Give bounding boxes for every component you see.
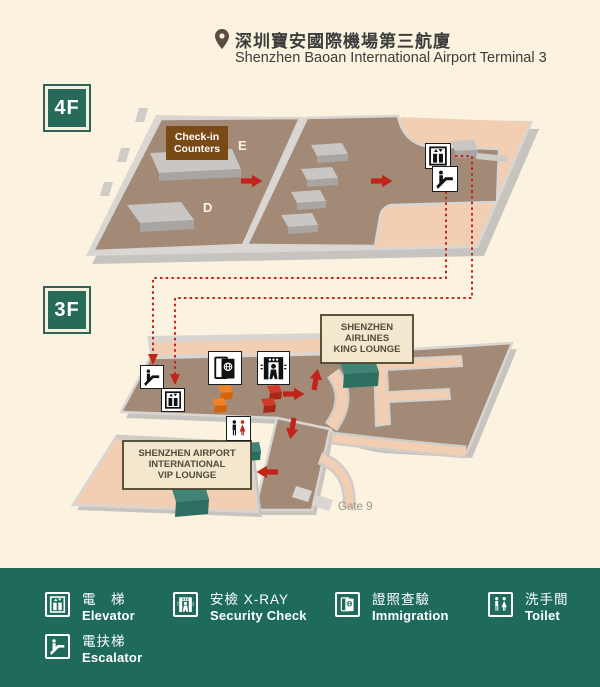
legend-item-elevator: 電 梯 Elevator <box>45 592 135 624</box>
escalator-icon <box>432 166 458 192</box>
toilet-icon <box>226 416 251 441</box>
elevator-icon <box>161 388 185 412</box>
legend-item-toilet: 洗手間 Toilet <box>488 592 569 624</box>
vip-lounge-label: SHENZHEN AIRPORT INTERNATIONAL VIP LOUNG… <box>123 441 251 489</box>
toilet-icon <box>488 592 513 617</box>
security-check-icon <box>173 592 198 617</box>
vip-lounge-line3: VIP LOUNGE <box>158 470 216 481</box>
legend-bar: 電 梯 Elevator 電扶梯 Escalator 安檢 X-RAY Secu… <box>0 568 600 687</box>
king-lounge-label: SHENZHEN AIRLINES KING LOUNGE <box>321 315 413 363</box>
elevator-icon <box>45 592 70 617</box>
legend-security-en: Security Check <box>210 608 307 624</box>
king-lounge-line2: AIRLINES <box>345 333 389 344</box>
legend-item-escalator: 電扶梯 Escalator <box>45 634 142 666</box>
checkin-counters-label: Check-in Counters <box>166 126 228 160</box>
legend-item-immigration: 證照查驗 Immigration <box>335 592 449 624</box>
checkin-line1: Check-in <box>175 131 219 143</box>
legend-item-security: 安檢 X-RAY Security Check <box>173 592 307 624</box>
legend-elevator-en: Elevator <box>82 608 135 624</box>
legend-toilet-zh: 洗手間 <box>525 592 569 608</box>
immigration-icon <box>208 351 242 385</box>
gate-9-label: Gate 9 <box>338 501 373 513</box>
escalator-icon <box>140 365 164 389</box>
immigration-icon <box>335 592 360 617</box>
legend-security-zh: 安檢 X-RAY <box>210 592 307 608</box>
king-lounge-line1: SHENZHEN <box>341 322 393 333</box>
terminal-map: E D Check-in Counters <box>0 0 600 568</box>
escalator-icon <box>45 634 70 659</box>
zone-e-label: E <box>238 138 247 153</box>
legend-immigration-zh: 證照查驗 <box>372 592 449 608</box>
vip-lounge-line2: INTERNATIONAL <box>149 459 226 470</box>
legend-toilet-en: Toilet <box>525 608 569 624</box>
legend-elevator-zh: 電 梯 <box>82 592 135 608</box>
king-lounge-line3: KING LOUNGE <box>333 344 400 355</box>
legend-escalator-zh: 電扶梯 <box>82 634 142 650</box>
legend-escalator-en: Escalator <box>82 650 142 666</box>
security-check-icon <box>257 351 290 385</box>
zone-d-label: D <box>203 200 212 215</box>
checkin-line2: Counters <box>174 143 220 155</box>
vip-lounge-line1: SHENZHEN AIRPORT <box>138 448 235 459</box>
legend-immigration-en: Immigration <box>372 608 449 624</box>
